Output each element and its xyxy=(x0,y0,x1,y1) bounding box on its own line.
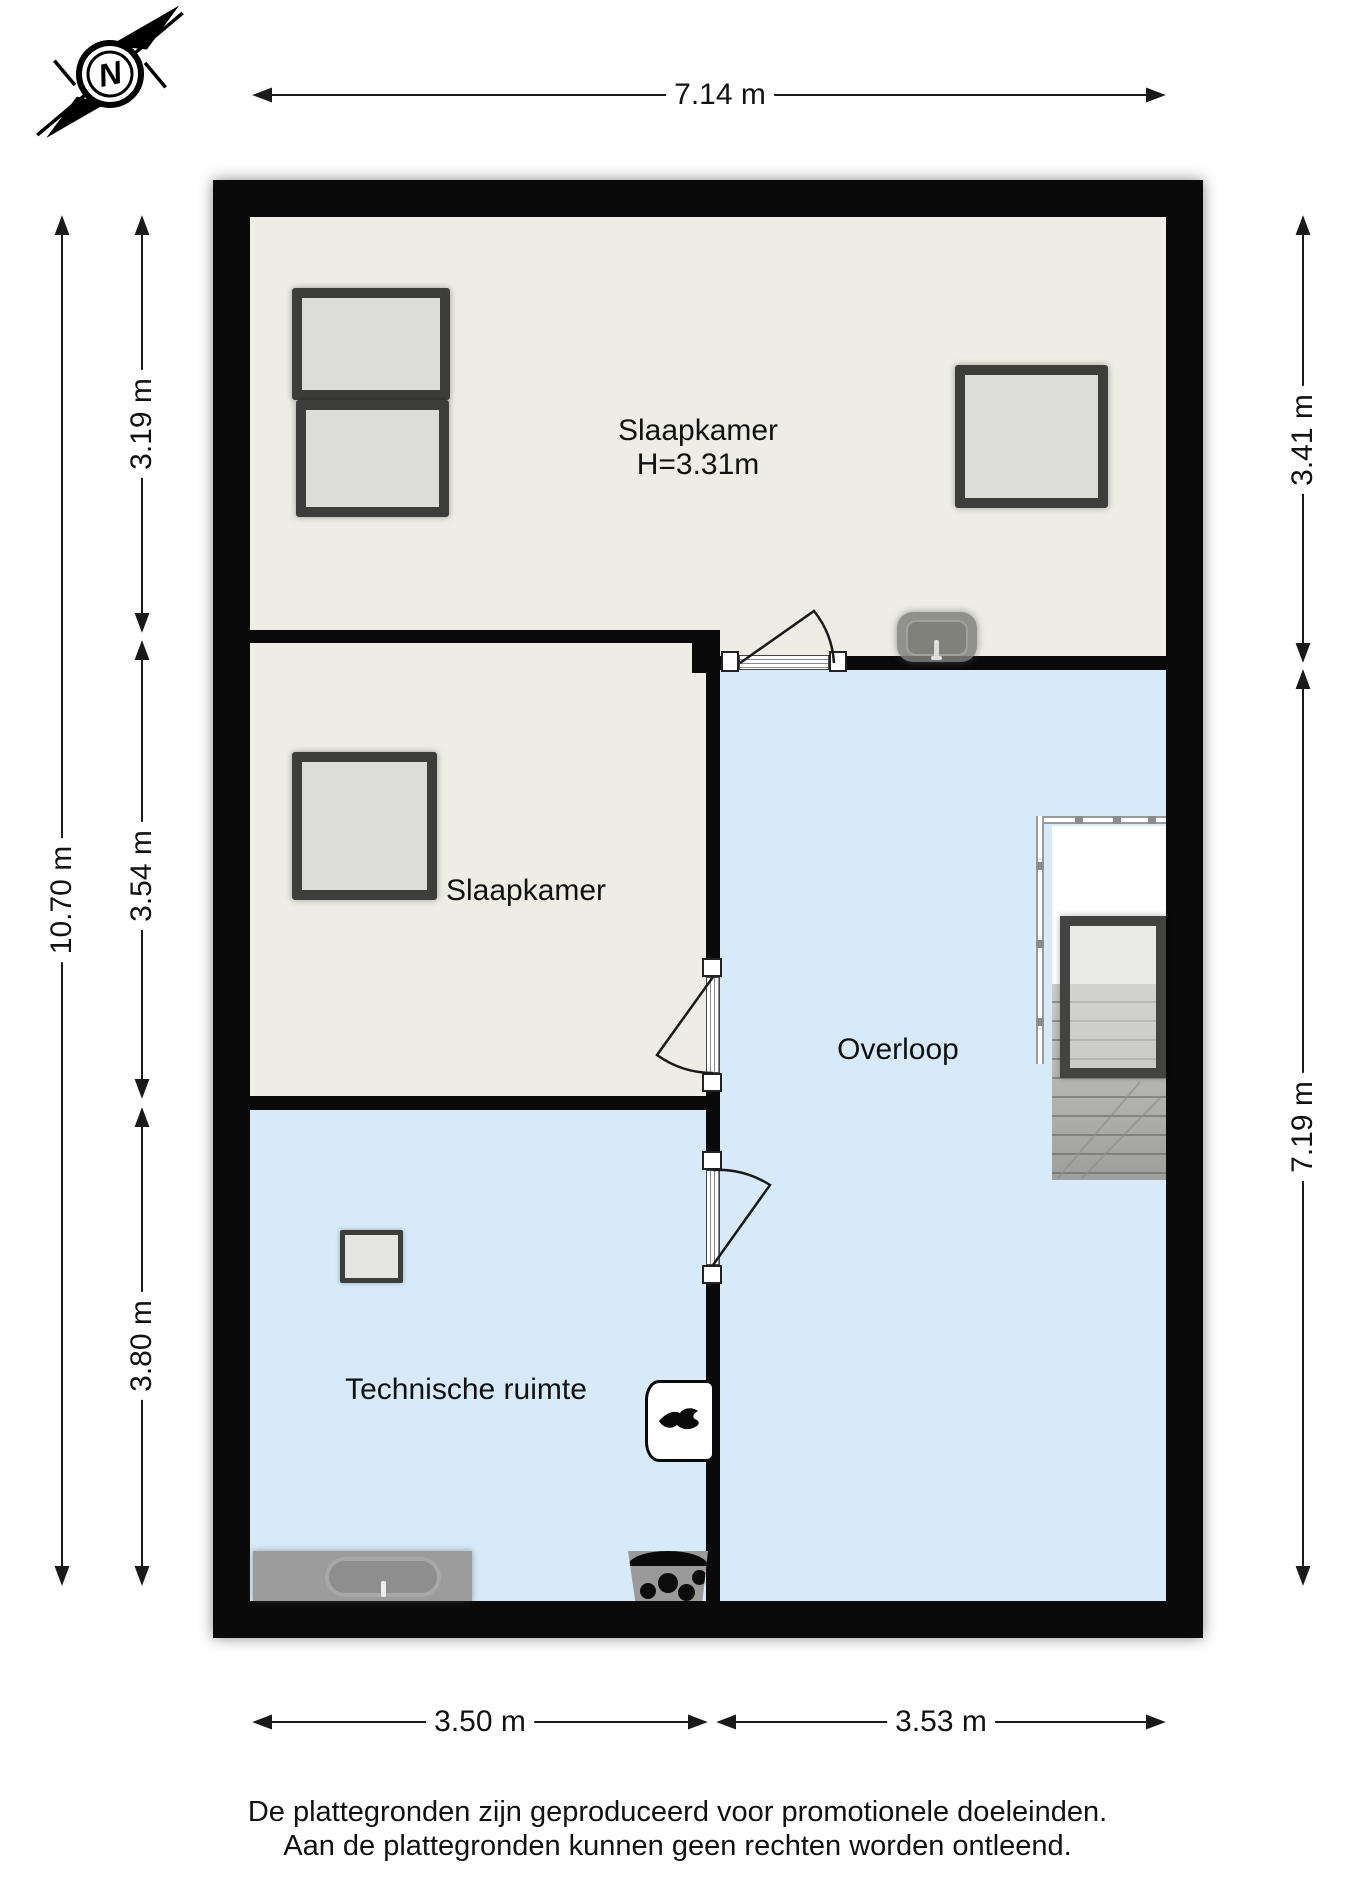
door-post xyxy=(702,958,722,977)
disclaimer-line-2: Aan de plattegronden kunnen geen rechten… xyxy=(0,1829,1355,1863)
footer-disclaimer: De plattegronden zijn geproduceerd voor … xyxy=(0,1795,1355,1863)
faucet-icon xyxy=(931,656,942,660)
dimension-label-bottom-left: 3.50 m xyxy=(426,1705,534,1739)
flame-icon xyxy=(657,1404,703,1438)
counter-technische xyxy=(253,1551,472,1601)
door-leaf-slaapkamer2 xyxy=(706,977,720,1073)
room-name: Slaapkamer xyxy=(618,414,778,448)
railing-post xyxy=(1036,940,1044,948)
dimension-label-room3-height: 3.80 m xyxy=(125,1292,159,1400)
wall-top xyxy=(213,180,1203,217)
dimension-label-right-overloop: 7.19 m xyxy=(1286,1073,1320,1181)
railing-post xyxy=(1036,1018,1044,1026)
dimension-label-left-total: 10.70 m xyxy=(45,838,79,962)
door-leaf-slaapkamer1 xyxy=(739,655,829,670)
wall-slaapkamer1-slaapkamer2 xyxy=(250,630,720,643)
dimension-label-right-room1: 3.41 m xyxy=(1286,386,1320,494)
north-arrow-icon: N xyxy=(10,0,220,165)
floor-plan-page: N xyxy=(0,0,1355,1880)
skylight-window-icon-2 xyxy=(955,365,1108,508)
heater-hood xyxy=(628,1551,708,1566)
room-label-slaapkamer-1: Slaapkamer H=3.31m xyxy=(618,414,778,482)
wall-corridor-segment-1 xyxy=(706,630,720,958)
faucet-icon xyxy=(381,1581,386,1597)
skylight-window-icon-3 xyxy=(292,752,437,900)
skylight-window-over-stairs xyxy=(1060,916,1166,1078)
door-post xyxy=(702,1073,722,1092)
room-height-label: H=3.31m xyxy=(618,448,778,482)
room-label-slaapkamer-2: Slaapkamer xyxy=(446,874,606,908)
room-technische-ruimte xyxy=(250,1110,706,1601)
room-label-technische-ruimte: Technische ruimte xyxy=(345,1373,587,1407)
room-label-overloop: Overloop xyxy=(837,1033,959,1067)
railing-post xyxy=(1075,816,1083,824)
sink-icon-slaapkamer1 xyxy=(897,612,977,662)
stairs-railing-top xyxy=(1036,816,1166,824)
dimension-label-room1-height: 3.19 m xyxy=(125,370,159,478)
skylight-window-icon-1b xyxy=(296,400,449,517)
wall-bottom xyxy=(213,1601,1203,1638)
dimension-label-bottom-right: 3.53 m xyxy=(887,1705,995,1739)
railing-post xyxy=(1036,862,1044,870)
wall-slaapkamer2-technische xyxy=(250,1096,720,1110)
boiler-icon xyxy=(645,1380,715,1462)
railing-post xyxy=(1148,816,1156,824)
door-post xyxy=(702,1265,722,1284)
window-icon-technische xyxy=(340,1230,403,1283)
disclaimer-line-1: De plattegronden zijn geproduceerd voor … xyxy=(0,1795,1355,1829)
wall-right xyxy=(1166,180,1203,1638)
dimension-label-top-width: 7.14 m xyxy=(666,78,774,112)
door-post xyxy=(829,651,847,672)
door-post xyxy=(702,1151,722,1170)
railing-post xyxy=(1113,816,1121,824)
dimension-label-room2-height: 3.54 m xyxy=(125,822,159,930)
skylight-window-icon-1a xyxy=(292,288,450,400)
burner-dot xyxy=(640,1583,656,1599)
door-post xyxy=(721,651,739,672)
door-leaf-technische xyxy=(706,1170,720,1265)
wall-left xyxy=(213,180,250,1638)
wall-slaapkamer1-overloop-right xyxy=(847,656,1166,670)
burner-dot xyxy=(678,1584,695,1601)
heater-unit-icon xyxy=(628,1551,708,1601)
burner-dot xyxy=(658,1573,678,1593)
